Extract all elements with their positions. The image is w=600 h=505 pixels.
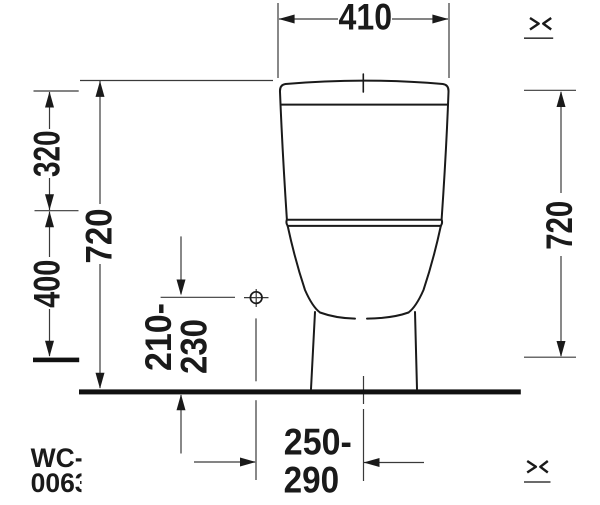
- svg-text:250-: 250-: [284, 422, 352, 463]
- svg-text:720: 720: [539, 201, 580, 250]
- svg-text:290: 290: [284, 459, 340, 500]
- svg-text:720: 720: [79, 209, 120, 264]
- svg-text:320: 320: [27, 131, 68, 178]
- svg-text:400: 400: [27, 260, 68, 308]
- svg-text:230: 230: [174, 319, 215, 374]
- svg-text:410: 410: [339, 0, 393, 38]
